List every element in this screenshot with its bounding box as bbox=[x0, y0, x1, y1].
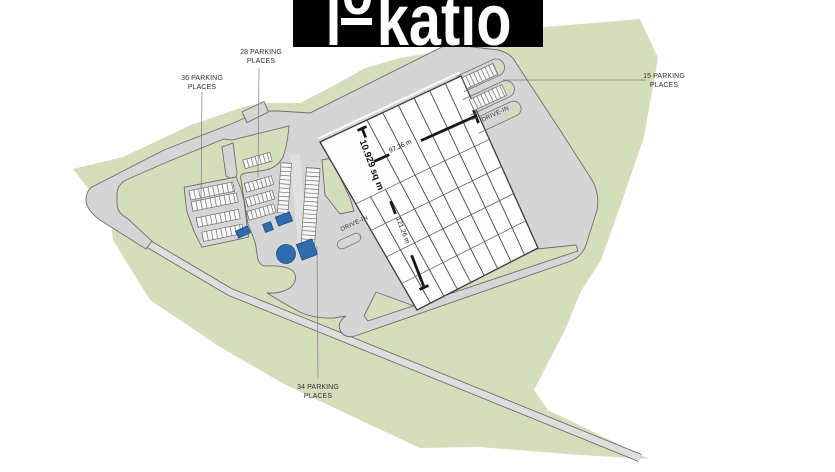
svg-text:28 PARKING: 28 PARKING bbox=[240, 49, 282, 56]
svg-text:34 PARKING: 34 PARKING bbox=[297, 384, 339, 391]
svg-text:PLACES: PLACES bbox=[650, 82, 678, 89]
svg-text:PLACES: PLACES bbox=[188, 84, 216, 91]
svg-text:36 PARKING: 36 PARKING bbox=[181, 75, 223, 82]
svg-text:PLACES: PLACES bbox=[247, 58, 275, 65]
svg-text:PLACES: PLACES bbox=[304, 393, 332, 400]
svg-text:15 PARKING: 15 PARKING bbox=[643, 73, 685, 80]
